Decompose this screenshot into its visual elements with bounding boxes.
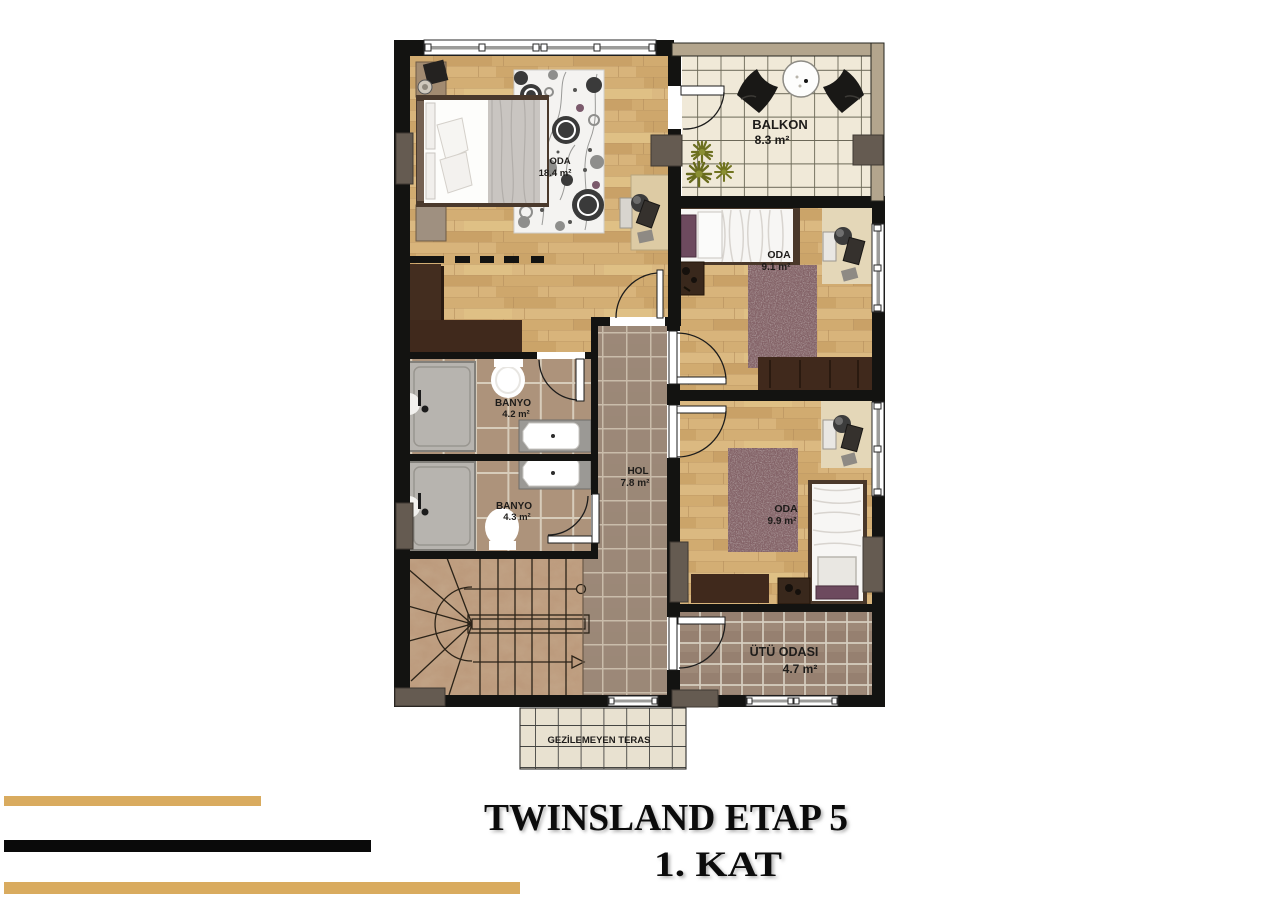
svg-text:GEZİLEMEYEN TERAS: GEZİLEMEYEN TERAS xyxy=(548,735,651,746)
svg-text:ODA: ODA xyxy=(549,156,570,167)
svg-text:8.3 m²: 8.3 m² xyxy=(755,133,790,147)
svg-text:TWINSLAND ETAP 5: TWINSLAND ETAP 5 xyxy=(484,797,848,839)
svg-text:9.9 m²: 9.9 m² xyxy=(768,516,798,527)
svg-text:4.7 m²: 4.7 m² xyxy=(783,662,818,676)
svg-text:4.3 m²: 4.3 m² xyxy=(503,512,530,523)
svg-text:BALKON: BALKON xyxy=(752,117,808,132)
svg-text:BANYO: BANYO xyxy=(495,398,531,409)
svg-text:BANYO: BANYO xyxy=(496,501,532,512)
svg-text:ODA: ODA xyxy=(774,503,798,515)
svg-text:ÜTÜ ODASI: ÜTÜ ODASI xyxy=(750,644,819,659)
svg-text:7.8 m²: 7.8 m² xyxy=(621,478,651,489)
svg-text:1. KAT: 1. KAT xyxy=(654,844,782,884)
svg-text:4.2 m²: 4.2 m² xyxy=(502,409,529,420)
svg-text:HOL: HOL xyxy=(627,466,648,477)
svg-text:ODA: ODA xyxy=(767,249,791,261)
svg-text:18.4 m²: 18.4 m² xyxy=(539,168,572,179)
svg-text:9.1 m²: 9.1 m² xyxy=(762,262,792,273)
